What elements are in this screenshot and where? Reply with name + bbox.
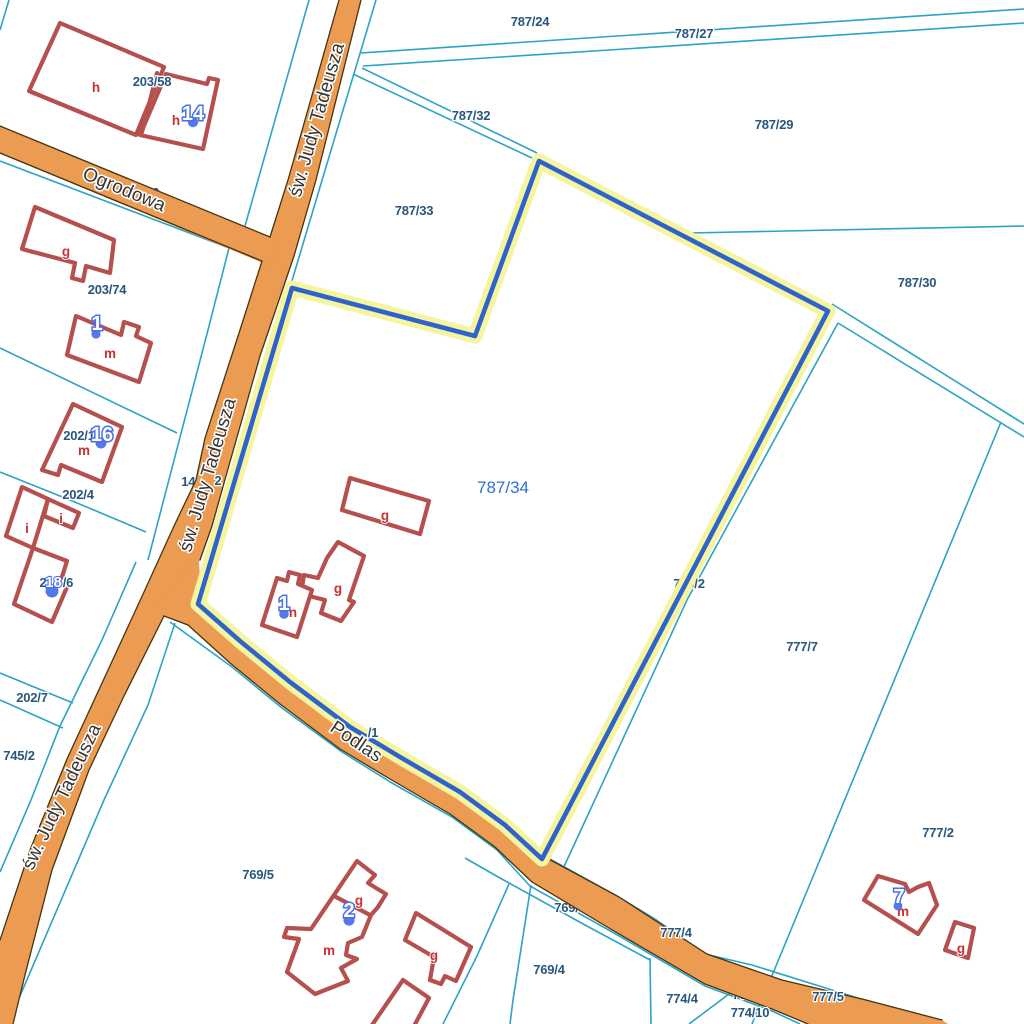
svg-text:202/4: 202/4 <box>62 487 95 502</box>
svg-text:7: 7 <box>893 886 904 908</box>
svg-text:745/2: 745/2 <box>3 748 35 763</box>
svg-text:2: 2 <box>214 473 221 488</box>
svg-text:h: h <box>172 113 180 128</box>
svg-text:777/4: 777/4 <box>660 925 693 940</box>
svg-text:787/29: 787/29 <box>755 117 794 132</box>
svg-text:m: m <box>78 443 90 458</box>
svg-text:g: g <box>957 941 965 956</box>
svg-text:m: m <box>104 346 116 361</box>
svg-text:m: m <box>323 943 335 958</box>
svg-text:h: h <box>92 80 100 95</box>
svg-text:774/4: 774/4 <box>666 991 699 1006</box>
svg-text:202/7: 202/7 <box>16 690 48 705</box>
svg-text:1: 1 <box>91 313 102 335</box>
svg-text:i: i <box>25 521 29 536</box>
svg-text:774/10: 774/10 <box>731 1005 770 1020</box>
svg-text:/6: /6 <box>63 575 73 590</box>
svg-text:g: g <box>62 244 70 259</box>
svg-text:203/58: 203/58 <box>133 74 172 89</box>
svg-text:777/7: 777/7 <box>786 639 818 654</box>
svg-text:18: 18 <box>45 574 62 591</box>
svg-text:203/74: 203/74 <box>88 282 128 297</box>
svg-text:787/32: 787/32 <box>452 108 491 123</box>
svg-text:777/2: 777/2 <box>922 825 954 840</box>
svg-text:i: i <box>59 511 63 526</box>
svg-text:g: g <box>381 508 389 523</box>
svg-text:787/34: 787/34 <box>477 478 529 497</box>
svg-text:g: g <box>430 948 438 963</box>
svg-text:2: 2 <box>343 900 354 922</box>
svg-text:n: n <box>289 605 297 620</box>
svg-text:16: 16 <box>91 424 113 446</box>
svg-text:777/5: 777/5 <box>812 989 844 1004</box>
svg-text:14: 14 <box>182 103 205 125</box>
svg-text:g: g <box>355 893 363 908</box>
svg-text:/1: /1 <box>368 725 378 740</box>
svg-text:g: g <box>334 581 342 596</box>
svg-text:787/24: 787/24 <box>511 14 551 29</box>
svg-text:1: 1 <box>278 593 289 615</box>
svg-text:769/5: 769/5 <box>242 867 274 882</box>
svg-text:787/30: 787/30 <box>898 275 937 290</box>
svg-text:769/4: 769/4 <box>533 962 566 977</box>
svg-text:787/27: 787/27 <box>675 26 714 41</box>
svg-text:787/33: 787/33 <box>395 203 434 218</box>
